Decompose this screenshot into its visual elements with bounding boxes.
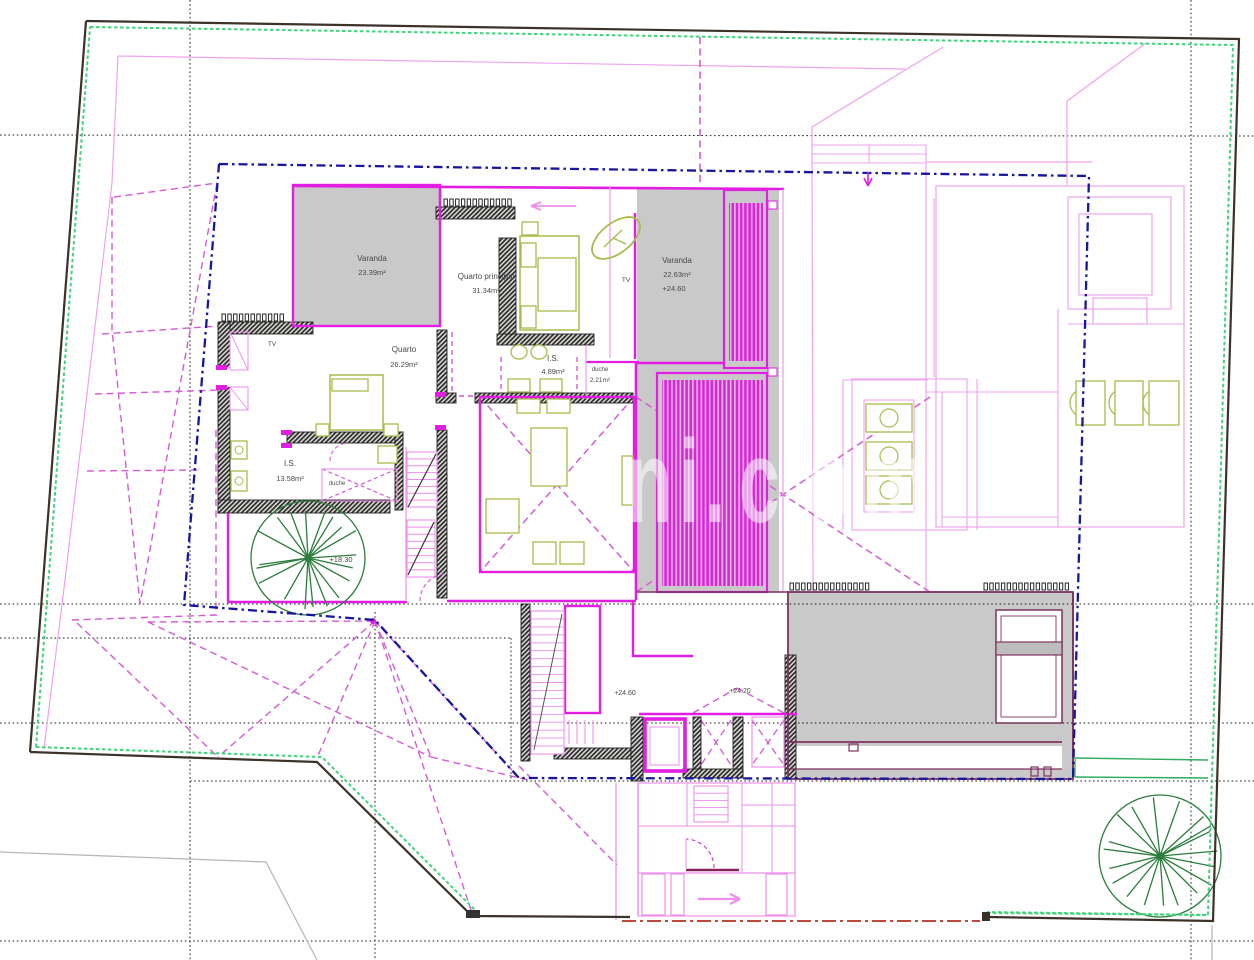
svg-text:n: n (627, 415, 672, 547)
svg-text:Varanda: Varanda (662, 256, 692, 265)
svg-text:TV: TV (622, 277, 631, 284)
svg-text:Quarto principal: Quarto principal (458, 272, 515, 281)
svg-text:13.58m²: 13.58m² (276, 474, 304, 483)
svg-text:I.S.: I.S. (547, 354, 559, 363)
svg-text:+24.60: +24.60 (614, 690, 636, 697)
svg-text:Varanda: Varanda (357, 254, 387, 263)
svg-text:m: m (862, 415, 927, 547)
svg-text:+24.20: +24.20 (729, 688, 751, 695)
svg-text:+24.60: +24.60 (662, 284, 685, 293)
svg-text:2.21m²: 2.21m² (590, 377, 611, 384)
svg-text:TV: TV (268, 341, 277, 348)
svg-text:23.39m²: 23.39m² (358, 268, 386, 277)
svg-text:duche: duche (592, 367, 609, 373)
svg-text:31.34m²: 31.34m² (472, 286, 500, 295)
svg-text:26.29m²: 26.29m² (390, 360, 418, 369)
svg-text:Quarto: Quarto (392, 345, 417, 354)
svg-text:duche: duche (329, 481, 346, 487)
svg-text:I.S.: I.S. (284, 459, 296, 468)
svg-text:o: o (806, 415, 851, 547)
svg-text:i: i (679, 415, 699, 547)
svg-text:+18.30: +18.30 (329, 555, 352, 564)
svg-text:4.89m²: 4.89m² (541, 367, 565, 376)
svg-text:22.63m²: 22.63m² (663, 270, 691, 279)
svg-text:c: c (739, 415, 780, 547)
svg-text:.: . (705, 415, 725, 547)
